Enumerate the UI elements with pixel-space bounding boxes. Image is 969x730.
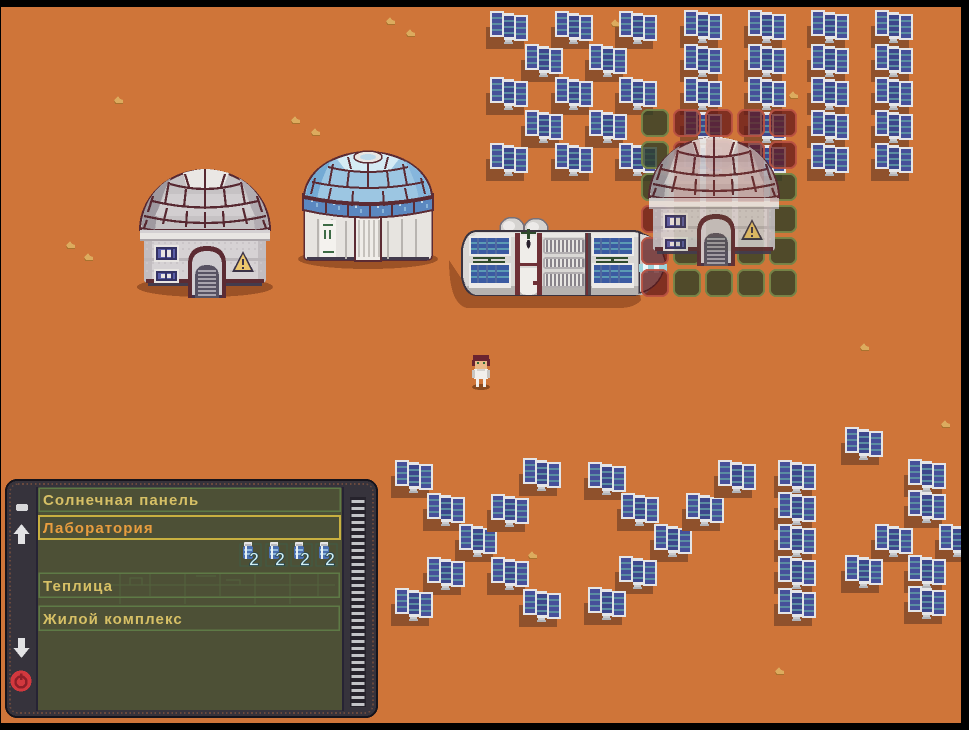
svg-text:2: 2 xyxy=(300,550,310,570)
svg-text:2: 2 xyxy=(275,550,285,570)
svg-text:Солнечная панель: Солнечная панель xyxy=(43,492,199,509)
svg-text:Теплица: Теплица xyxy=(43,578,113,595)
svg-text:2: 2 xyxy=(249,550,259,570)
svg-text:Жилой комплекс: Жилой комплекс xyxy=(42,611,183,628)
svg-text:2: 2 xyxy=(325,550,335,570)
svg-text:Лаборатория: Лаборатория xyxy=(43,520,154,537)
